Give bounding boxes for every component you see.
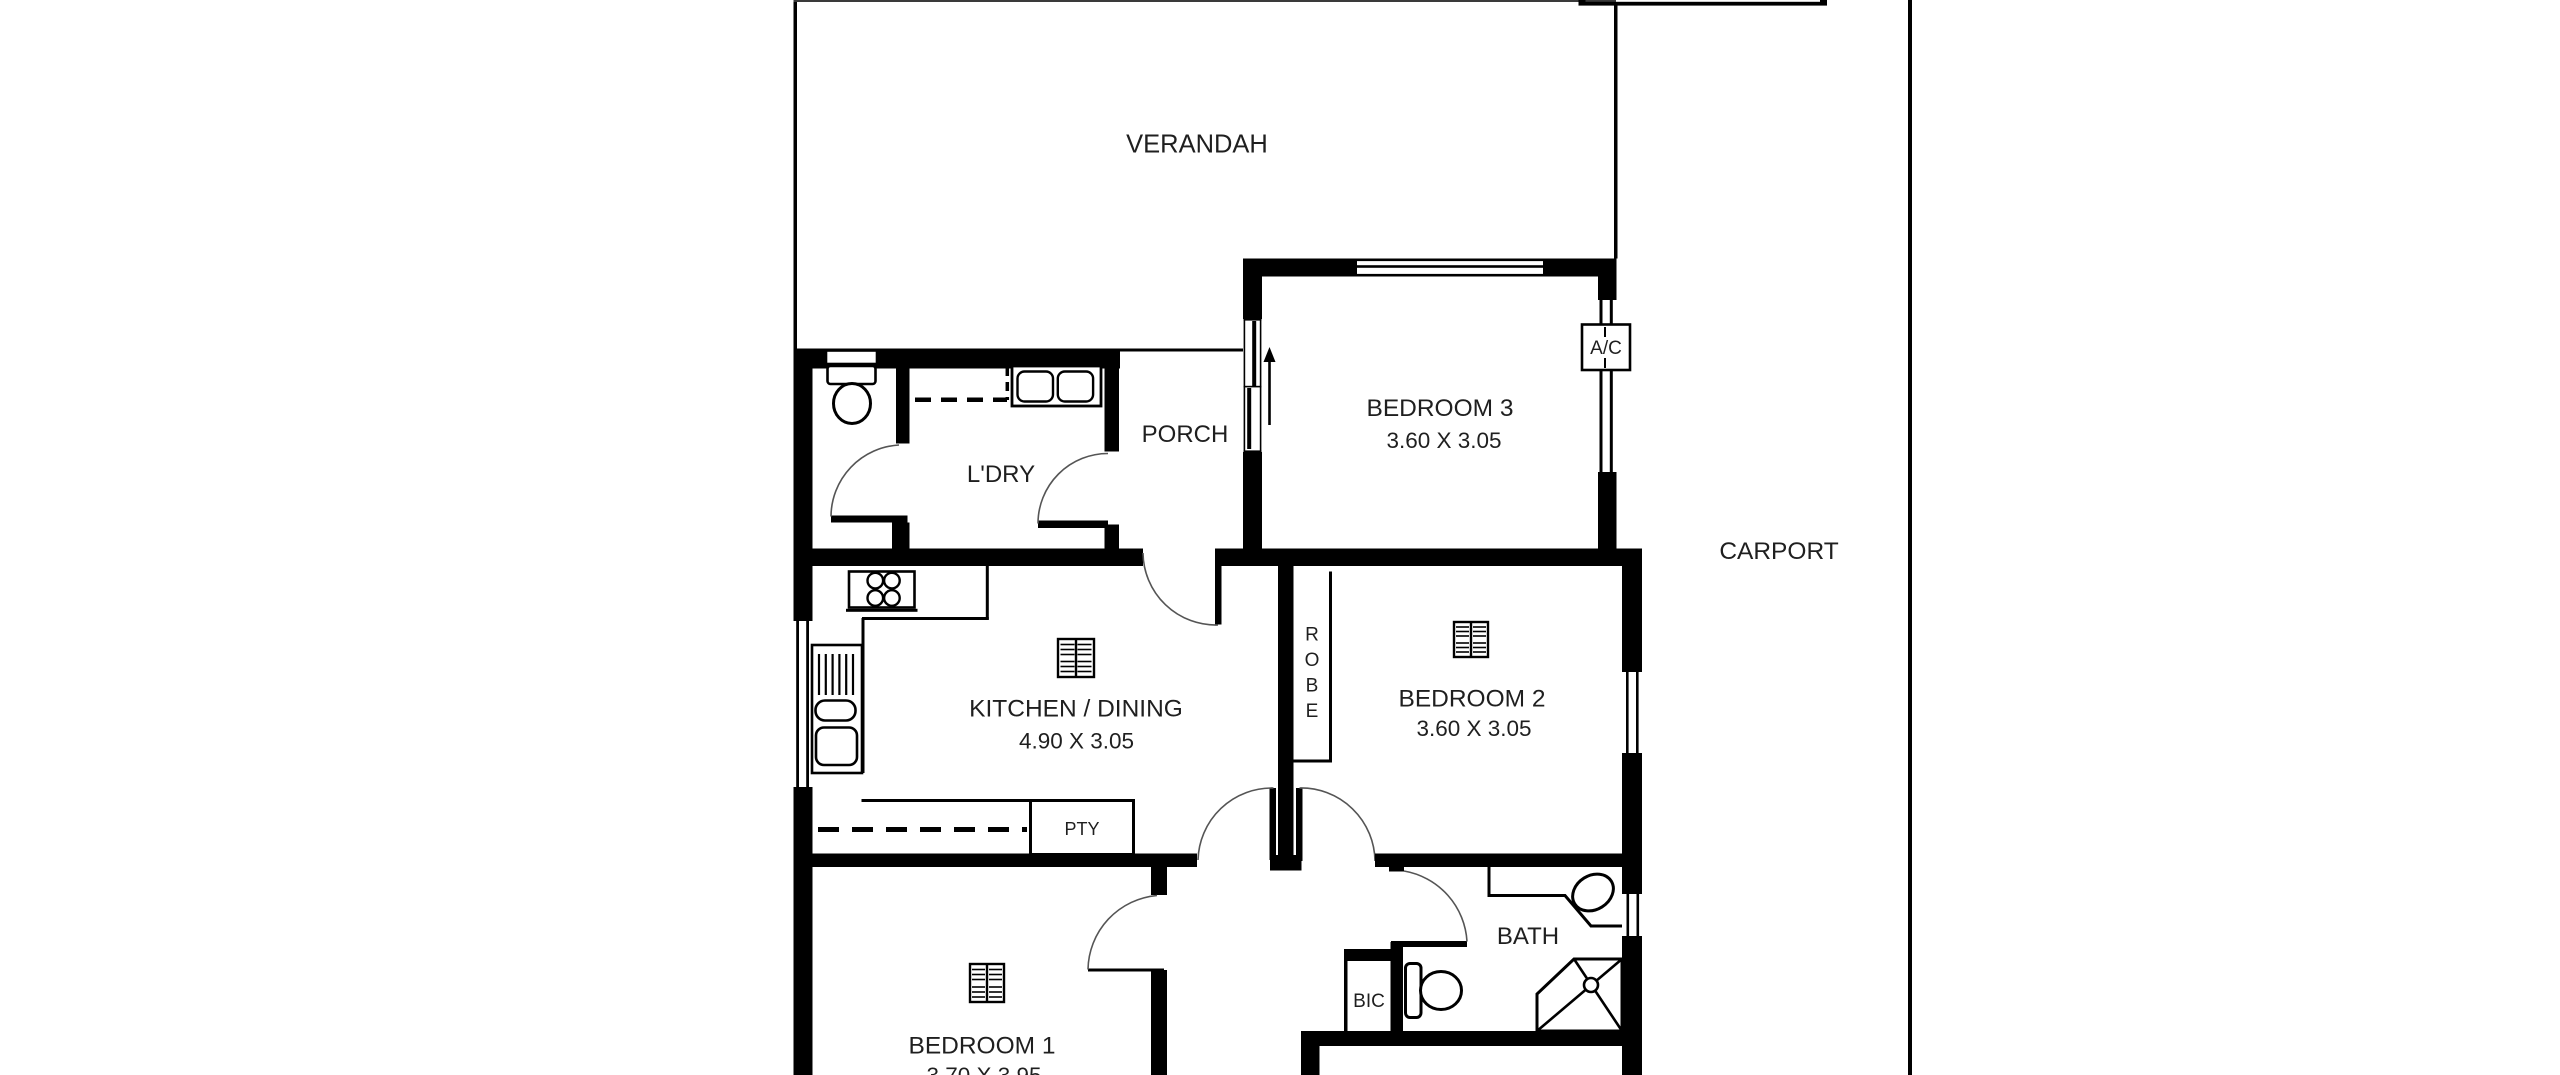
svg-text:BATH: BATH [1497, 923, 1559, 950]
svg-text:4.90 X 3.05: 4.90 X 3.05 [1019, 729, 1134, 754]
svg-text:PORCH: PORCH [1142, 421, 1229, 448]
svg-text:KITCHEN / DINING: KITCHEN / DINING [969, 696, 1183, 723]
svg-text:BEDROOM 3: BEDROOM 3 [1366, 395, 1513, 422]
svg-text:BEDROOM 2: BEDROOM 2 [1398, 686, 1545, 713]
svg-text:R: R [1305, 625, 1319, 646]
svg-text:BEDROOM 1: BEDROOM 1 [908, 1033, 1055, 1060]
svg-text:CARPORT: CARPORT [1719, 538, 1838, 565]
svg-text:VERANDAH: VERANDAH [1126, 131, 1268, 159]
svg-text:A/C: A/C [1590, 338, 1622, 359]
svg-text:E: E [1306, 701, 1319, 722]
svg-text:3.70 X 3.95: 3.70 X 3.95 [926, 1063, 1041, 1075]
svg-text:B: B [1306, 676, 1319, 697]
svg-text:O: O [1305, 650, 1320, 671]
svg-text:L'DRY: L'DRY [967, 461, 1035, 488]
svg-text:BIC: BIC [1353, 991, 1385, 1012]
svg-text:3.60 X 3.05: 3.60 X 3.05 [1416, 716, 1531, 741]
svg-text:3.60 X 3.05: 3.60 X 3.05 [1386, 428, 1501, 453]
svg-text:PTY: PTY [1064, 819, 1099, 839]
